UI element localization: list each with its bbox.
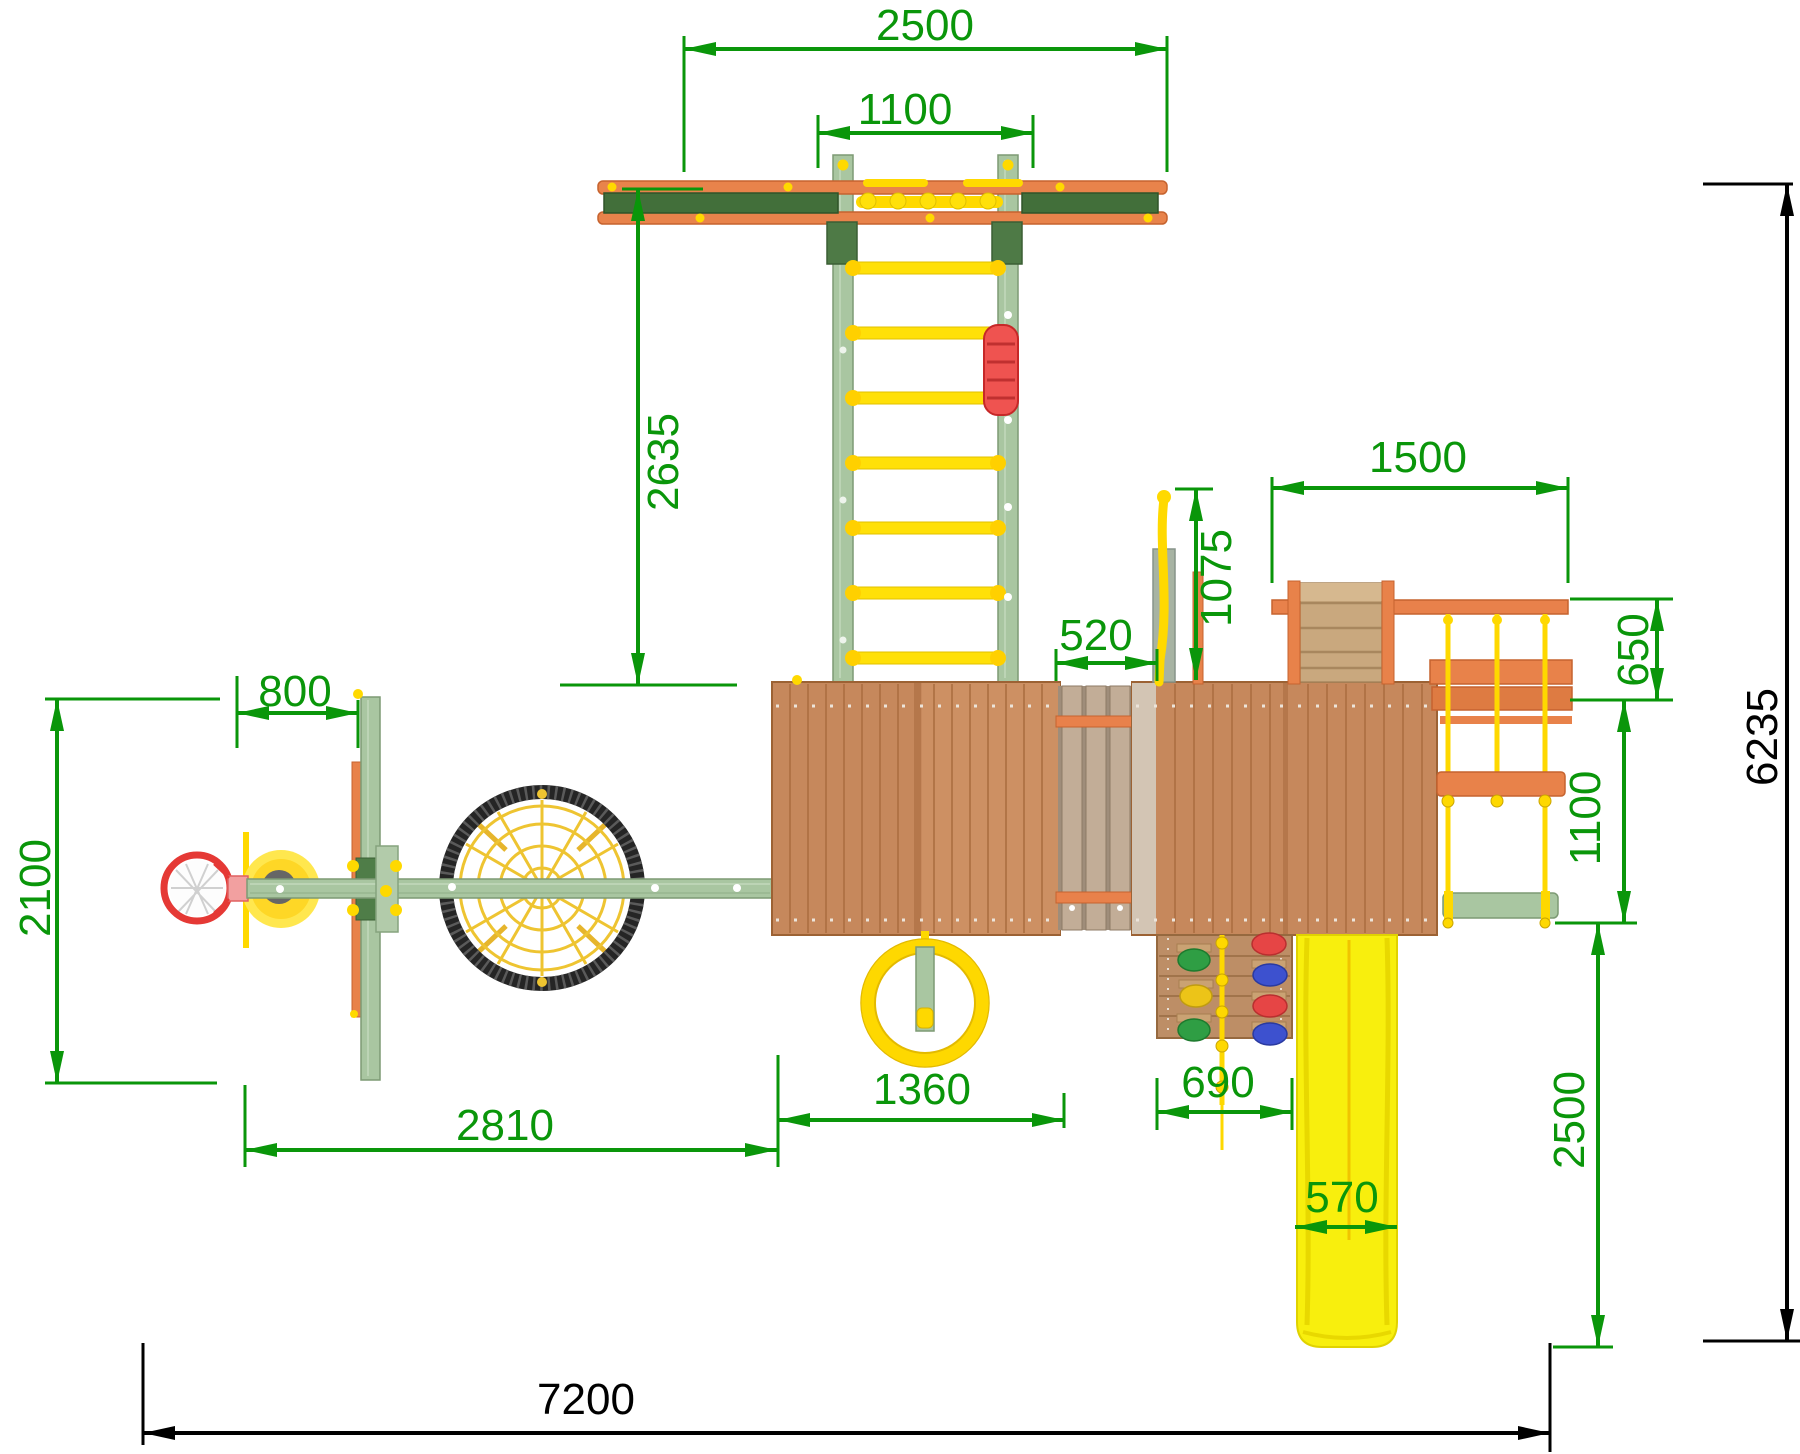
dim-label-overall-depth: 6235: [1741, 688, 1785, 786]
right-tower-roof: [1132, 682, 1437, 935]
ladder-rails: [833, 155, 1018, 682]
overhead-swing-beam: [598, 160, 1167, 265]
dim-label-swing-arm-span: 2810: [456, 1104, 554, 1148]
dim-label-backboard-offset: 800: [258, 670, 331, 714]
bridge-walkway: [1056, 686, 1136, 930]
trapeze-ring: [861, 931, 989, 1067]
rope-ladder-swing: [1430, 614, 1572, 928]
playground-plan-drawing: 2500 1100 2635 1500 1075 520 650 1100 25…: [0, 0, 1800, 1454]
dim-label-swing-beam-span: 2500: [876, 4, 974, 48]
dim-label-central-tower-width: 1360: [873, 1068, 971, 1112]
basketball-hoop: [164, 855, 248, 921]
central-tower-roof: [772, 675, 1060, 935]
drawing-graphics: [0, 0, 1800, 1454]
steering-wheel: [984, 325, 1018, 415]
dim-label-slide-width: 570: [1305, 1176, 1378, 1220]
ladder-rungs: [845, 260, 1018, 666]
dim-label-climbing-wall-width: 690: [1181, 1061, 1254, 1105]
slide: [1297, 935, 1397, 1347]
dim-label-firemans-pole-offset: 1075: [1195, 529, 1239, 627]
dim-label-tower-gap: 520: [1059, 614, 1132, 658]
dim-label-overall-length: 7200: [537, 1378, 635, 1422]
dim-label-rope-ladder-depth: 650: [1612, 613, 1656, 686]
dim-label-slide-length: 2500: [1548, 1071, 1592, 1169]
dim-label-right-module-span: 1500: [1369, 436, 1467, 480]
dim-label-ladder-length: 2635: [642, 413, 686, 511]
dim-label-basketball-beam-reach: 2100: [14, 839, 58, 937]
dim-label-swing-seat-drop: 1100: [1564, 771, 1608, 866]
dim-label-ladder-rail-spacing: 1100: [858, 88, 953, 132]
